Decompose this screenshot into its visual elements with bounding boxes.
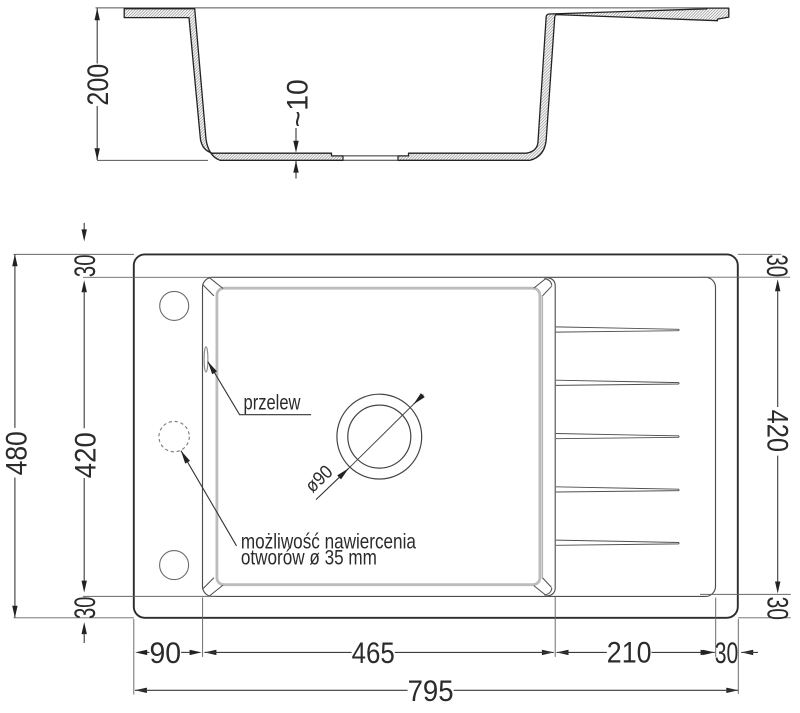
- svg-text:480: 480: [0, 431, 33, 475]
- svg-text:ø90: ø90: [301, 462, 337, 498]
- svg-text:420: 420: [761, 410, 794, 452]
- svg-text:30: 30: [760, 597, 793, 620]
- svg-text:~10: ~10: [281, 79, 314, 127]
- svg-text:30: 30: [69, 255, 102, 278]
- svg-text:210: 210: [607, 636, 652, 669]
- svg-text:200: 200: [82, 64, 115, 106]
- svg-text:30: 30: [715, 637, 739, 670]
- svg-text:465: 465: [352, 637, 395, 670]
- svg-text:420: 420: [70, 432, 103, 478]
- svg-text:otworów ø 35 mm: otworów ø 35 mm: [241, 546, 377, 569]
- svg-text:przelew: przelew: [244, 391, 302, 414]
- svg-text:30: 30: [760, 254, 793, 277]
- svg-text:90: 90: [150, 637, 182, 670]
- svg-text:795: 795: [408, 675, 454, 708]
- svg-text:30: 30: [69, 597, 102, 619]
